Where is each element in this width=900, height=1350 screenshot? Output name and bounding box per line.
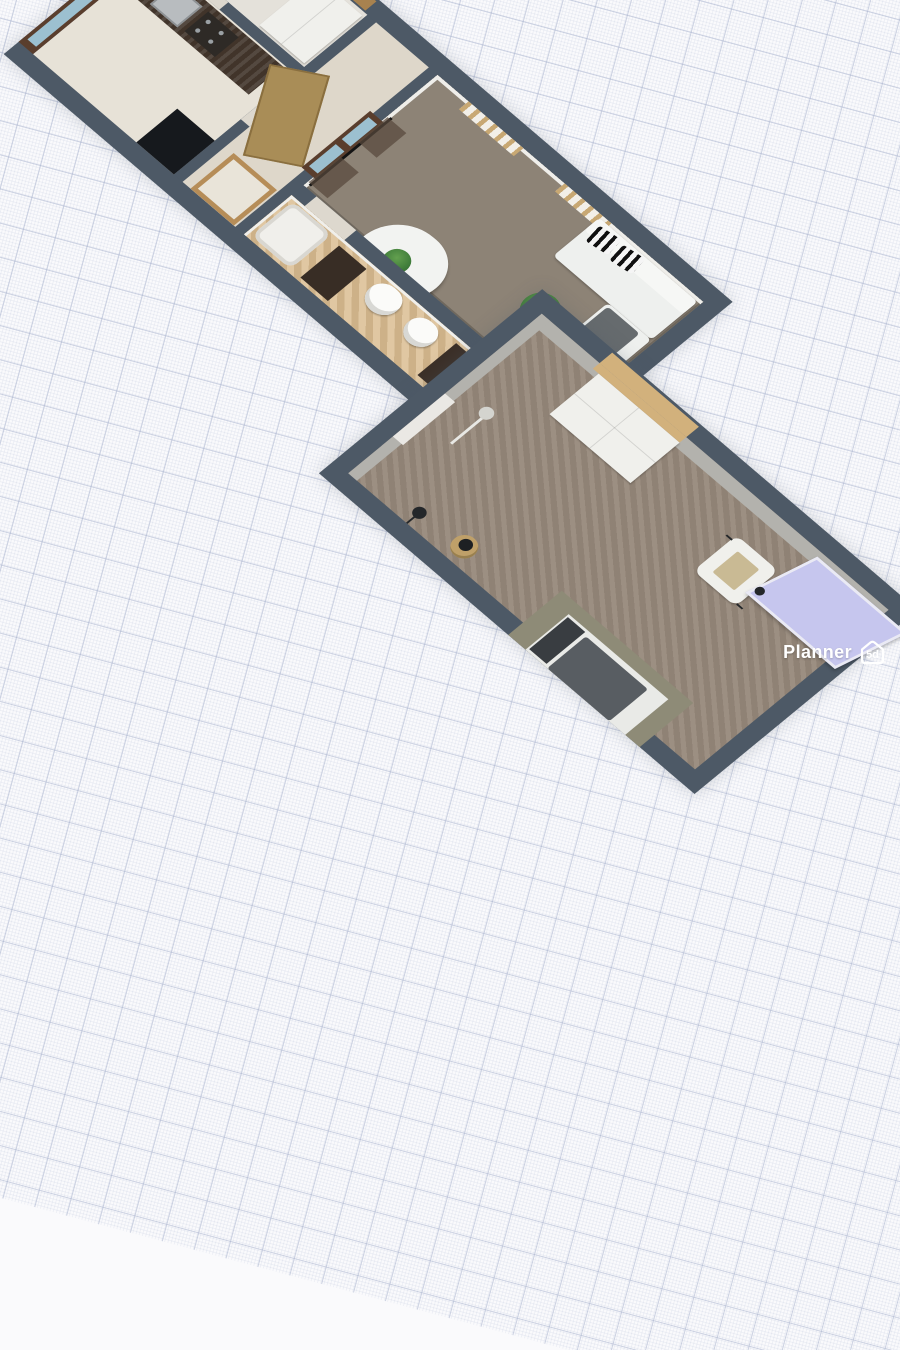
watermark-badge-text: 5d: [866, 649, 879, 661]
planner5d-house-badge-icon: 5d: [859, 640, 886, 665]
pot-plant-dark: [456, 536, 477, 553]
armchair-cushion: [712, 551, 759, 590]
watermark-brand-text: Planner: [783, 642, 852, 663]
watermark: Planner 5d: [783, 640, 886, 665]
